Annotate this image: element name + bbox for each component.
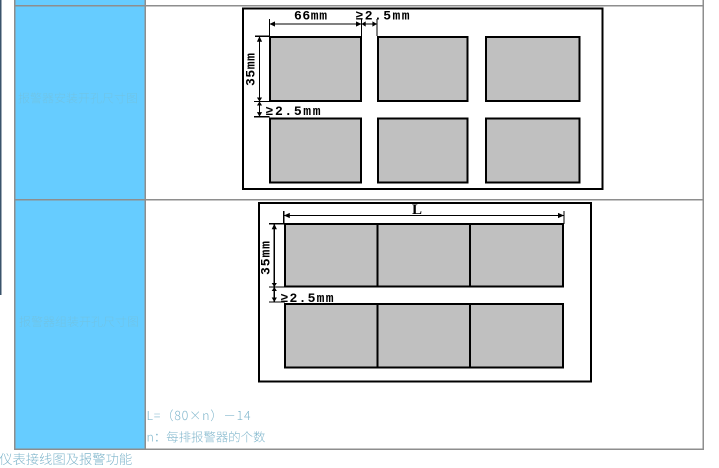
svg-text:35mm: 35mm bbox=[259, 241, 274, 275]
svg-text:66mm: 66mm bbox=[294, 9, 327, 24]
svg-text:L: L bbox=[412, 202, 422, 218]
svg-text:35mm: 35mm bbox=[244, 53, 259, 86]
svg-text:≥2.5mm: ≥2.5mm bbox=[266, 104, 321, 119]
svg-text:≥2.5mm: ≥2.5mm bbox=[356, 9, 410, 24]
